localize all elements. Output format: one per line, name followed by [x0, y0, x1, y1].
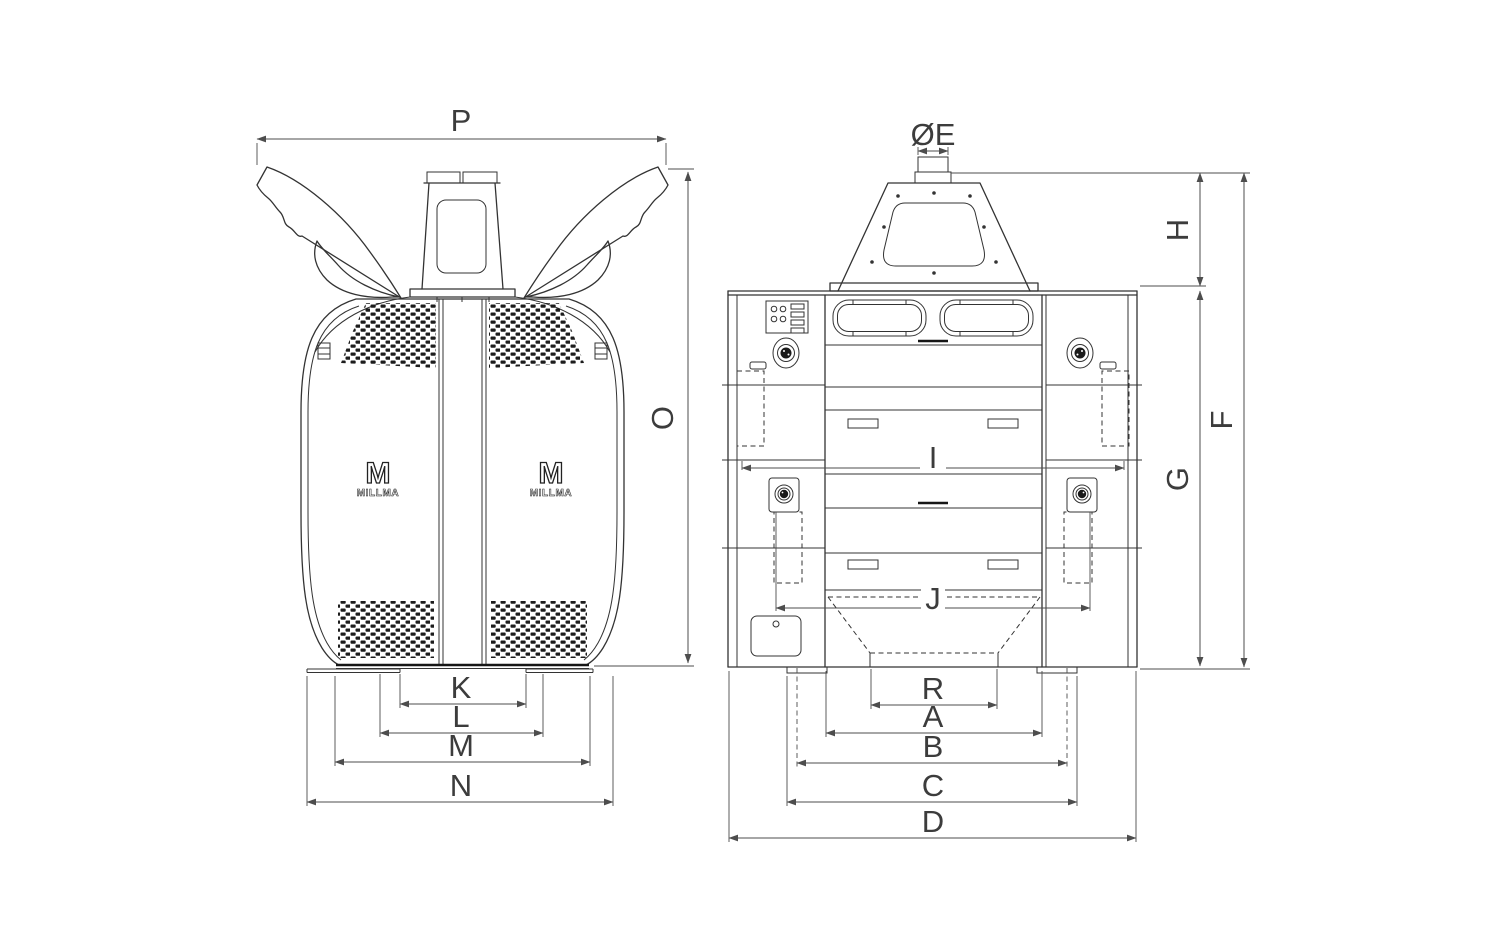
brand-logo-right: M MILLMA	[530, 457, 572, 499]
side-view: ØE H G F I J	[722, 117, 1250, 842]
inspection-window-right	[940, 300, 1033, 336]
dimension-h: H	[951, 173, 1250, 286]
dim-label-f: F	[1204, 411, 1239, 430]
logo-mark: M	[539, 457, 564, 490]
wing-left	[257, 167, 401, 298]
door-latch-right	[595, 343, 607, 359]
dim-label-o: O	[645, 406, 680, 430]
outlet	[870, 653, 998, 667]
control-panel	[766, 301, 808, 333]
inspection-window-left	[833, 300, 926, 336]
inlet-pipe	[915, 157, 951, 183]
technical-drawing-page: M MILLMA M MILLMA P O K L	[0, 0, 1500, 948]
dim-label-g: G	[1160, 467, 1195, 491]
brand-logo-left: M MILLMA	[357, 457, 399, 499]
dimension-j: J	[776, 512, 1090, 616]
dim-label-c: C	[922, 768, 944, 803]
door-latch-left	[318, 343, 330, 359]
adjuster-knob-lower-left	[769, 478, 799, 512]
adjuster-knob-lower-right	[1067, 478, 1097, 512]
dim-label-p: P	[451, 103, 472, 138]
left-column-fittings	[737, 301, 808, 656]
logo-mark: M	[366, 457, 391, 490]
dim-label-n: N	[450, 768, 472, 803]
dimension-f: F	[1140, 173, 1250, 669]
logo-text: MILLMA	[530, 488, 572, 499]
dimension-i: I	[742, 440, 1124, 475]
electrical-box	[751, 616, 801, 656]
dim-label-d: D	[922, 804, 944, 839]
logo-text: MILLMA	[357, 488, 399, 499]
front-view: M MILLMA M MILLMA P O K L	[257, 103, 694, 806]
dimension-p: P	[257, 103, 666, 165]
dim-label-h: H	[1160, 219, 1195, 241]
hopper-bolts	[870, 191, 998, 275]
feed-column	[410, 172, 515, 302]
dimension-e: ØE	[911, 117, 956, 155]
dim-label-m: M	[448, 728, 474, 763]
wing-right	[524, 167, 668, 298]
machine-dimension-drawing: M MILLMA M MILLMA P O K L	[0, 0, 1500, 948]
dim-label-j: J	[925, 581, 941, 616]
dimension-g: G	[1160, 291, 1200, 666]
dim-label-b: B	[923, 729, 944, 764]
handwheel-upper-left	[773, 338, 799, 368]
dim-label-i: I	[929, 440, 938, 475]
dim-label-e: ØE	[911, 117, 956, 152]
hopper	[830, 183, 1038, 291]
handwheel-upper-right	[1067, 338, 1093, 368]
